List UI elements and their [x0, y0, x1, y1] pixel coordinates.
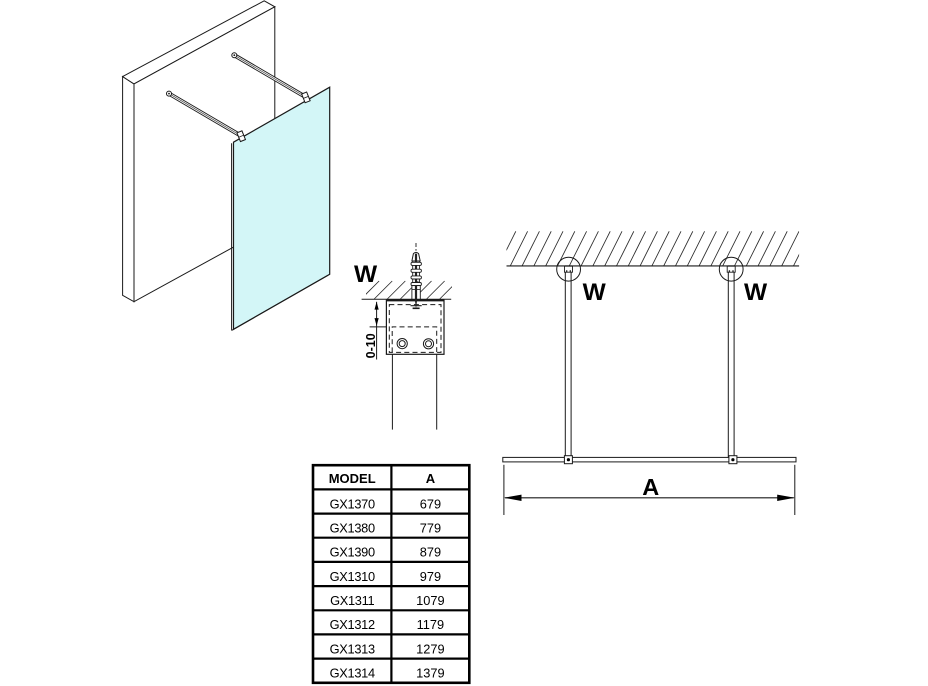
svg-text:W: W: [583, 279, 607, 306]
svg-text:GX1390: GX1390: [330, 545, 375, 560]
svg-text:879: 879: [420, 545, 441, 560]
svg-text:1179: 1179: [417, 617, 445, 632]
svg-text:A: A: [642, 474, 659, 500]
svg-text:GX1380: GX1380: [330, 520, 375, 535]
svg-text:A: A: [426, 471, 436, 486]
svg-text:GX1370: GX1370: [330, 496, 375, 511]
svg-text:779: 779: [420, 520, 441, 535]
svg-text:GX1313: GX1313: [330, 641, 375, 656]
svg-text:W: W: [744, 279, 768, 306]
svg-text:GX1310: GX1310: [330, 569, 375, 584]
svg-text:GX1312: GX1312: [330, 617, 375, 632]
svg-text:MODEL: MODEL: [329, 471, 376, 486]
svg-text:979: 979: [420, 569, 441, 584]
svg-text:1379: 1379: [416, 666, 444, 681]
svg-text:GX1314: GX1314: [330, 666, 375, 681]
svg-text:GX1311: GX1311: [330, 593, 374, 608]
svg-text:679: 679: [420, 496, 441, 511]
svg-text:W: W: [354, 261, 378, 288]
svg-text:1079: 1079: [416, 593, 444, 608]
svg-text:1279: 1279: [416, 641, 444, 656]
svg-text:0-10: 0-10: [364, 333, 378, 358]
